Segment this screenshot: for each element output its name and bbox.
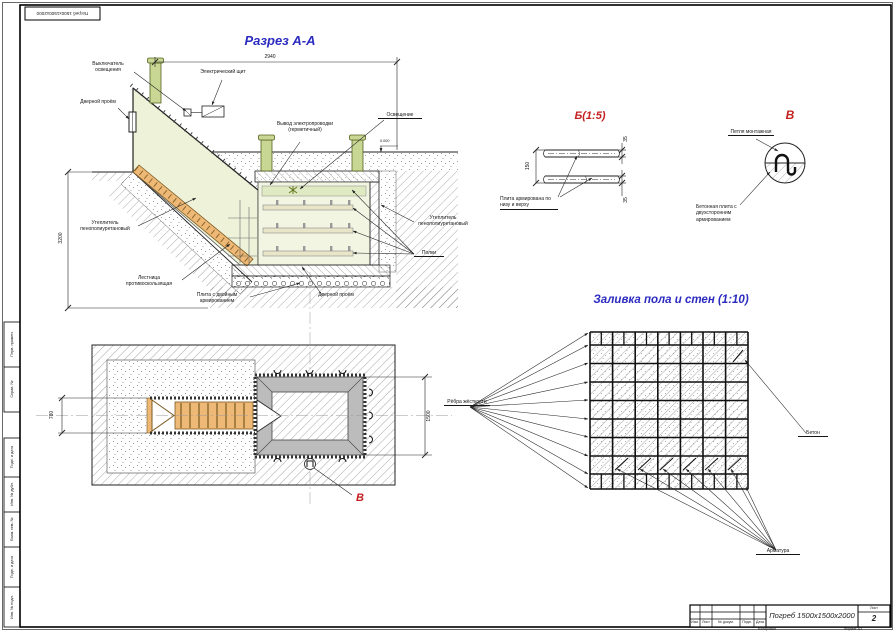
tb-col-dokum: № докум. xyxy=(712,620,740,624)
detail-b-dim35b: 35 xyxy=(623,197,629,203)
label-door-left: Дверной проём xyxy=(76,99,120,105)
label-shelves: Полки xyxy=(414,250,444,257)
pour-rebar-label: Арматура xyxy=(756,548,800,555)
label-panel: Электрический щит xyxy=(197,69,249,75)
side-field-6: Инв. № подл. xyxy=(10,595,14,619)
label-switch: Выключатель освещения xyxy=(80,61,136,74)
dim-3200-text: 3200 xyxy=(58,232,64,243)
tb-col-list: Лист xyxy=(700,620,712,624)
plan-dim-780: 780 xyxy=(49,411,55,419)
drawing-canvas xyxy=(0,0,895,632)
plan-marker-v: В xyxy=(348,492,372,504)
label-lighting: Освещение xyxy=(378,112,422,119)
detail-b-label: Плита армирована по низу и верху xyxy=(500,196,558,210)
pour-ribs-label: Рёбра жёсткости xyxy=(444,399,490,406)
tb-doc-title: Погреб 1500х1500х2000 xyxy=(768,607,856,625)
tb-col-izm: Изм. xyxy=(690,620,700,624)
corner-stamp: Погреб 1500х1500х2000 xyxy=(25,7,100,20)
side-field-5: Подп. и дата xyxy=(10,556,14,578)
detail-v-title: В xyxy=(775,108,805,122)
side-field-0: Перв. примен. xyxy=(10,331,14,356)
detail-b-title: Б(1:5) xyxy=(560,110,620,122)
tb-col-data: Дата xyxy=(754,620,766,624)
detail-v-loop-label: Петля монтажная xyxy=(728,129,774,136)
tb-copied: Копировал xyxy=(742,627,792,631)
side-field-1: Справ. № xyxy=(10,380,14,397)
detail-b-dim150: 150 xyxy=(525,162,531,170)
tb-sheet-number: 2 xyxy=(859,612,889,626)
label-slab: Плита с двойным армированием xyxy=(184,292,250,305)
side-field-4: Взам. инв. № xyxy=(10,517,14,541)
tb-col-podp: Подп. xyxy=(740,620,754,624)
pour-concrete-label: Бетон xyxy=(798,430,828,437)
dim-2940-text: 2940 xyxy=(252,54,288,60)
plan-drawing xyxy=(36,345,452,495)
side-field-3: Инв. № дубл. xyxy=(10,482,14,506)
drawing-sheet: Погреб 1500х1500х2000 Перв. примен. Спра… xyxy=(0,0,895,632)
section-title: Разрез А-А xyxy=(225,33,335,48)
side-field-2: Подп. и дата xyxy=(10,446,14,468)
pour-title: Заливка пола и стен (1:10) xyxy=(586,294,756,306)
tb-format: Формат A3 xyxy=(828,627,878,631)
label-stairs: Лестница противоскользящая xyxy=(116,275,182,288)
label-wiring: Вывод электропроводки (герметичный) xyxy=(272,121,338,134)
detail-v-slab-label: Бетонная плита с двухсторонним армирован… xyxy=(696,204,756,223)
plan-dim-1500: 1500 xyxy=(426,410,432,421)
tb-sheet-label: Лист xyxy=(859,606,889,610)
level-text: 0.000 xyxy=(380,139,402,144)
label-door-bottom: Дверной проём xyxy=(314,292,358,298)
detail-b-dim35a: 35 xyxy=(623,136,629,142)
label-insulation-left: Утеплитель пенополиуретановый xyxy=(72,220,138,233)
label-insulation-right: Утеплитель пенополиуретановый xyxy=(410,215,476,228)
